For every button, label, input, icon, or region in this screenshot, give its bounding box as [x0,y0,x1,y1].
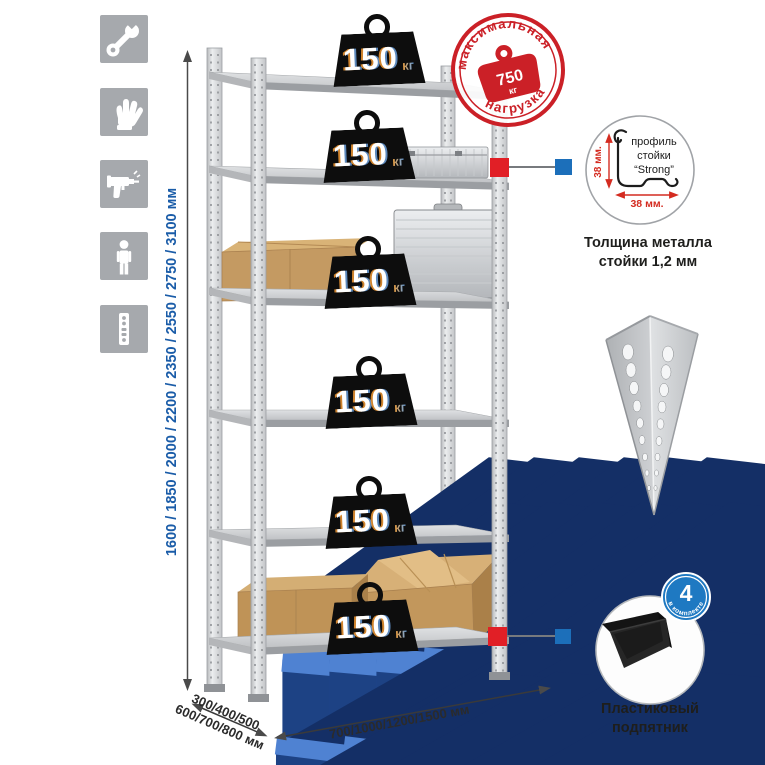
svg-text:стойки: стойки [637,150,671,162]
red-marker [488,627,507,646]
svg-text:“Strong”: “Strong” [634,164,674,176]
height-dimension-label: 1600 / 1850 / 2000 / 2200 / 2350 / 2550 … [164,188,180,556]
post-profile-detail: 38 мм. 38 мм. профиль стойки “Strong” [584,114,696,226]
height-dimension: 1600 / 1850 / 2000 / 2200 / 2350 / 2550 … [164,56,188,685]
profile-callout-connector [490,158,572,177]
wrench-icon [100,15,148,63]
person-icon [100,232,148,280]
included-count-badge: 4 в комплекте [659,570,713,624]
angle-post-image [596,310,706,525]
shelf-load-badge: 150кг [322,474,417,549]
drill-icon [100,160,148,208]
shelf-load-badge: 150кг [321,234,416,309]
profile-horizontal-dim: 38 мм. [630,198,663,210]
product-infographic: { "rack": { "shelf_load_value": "150", "… [0,0,765,765]
shelf-load-badge: 150кг [322,354,417,429]
svg-text:профиль: профиль [631,136,677,148]
profile-vertical-dim: 38 мм. [593,146,604,178]
profile-caption: Толщина металла стойки 1,2 мм [556,234,740,271]
blue-marker [555,629,571,644]
red-marker [490,158,509,177]
included-count-value: 4 [680,580,693,606]
foot-caption: Пластиковый подпятник [558,700,742,737]
shelf-load-badge: 150кг [330,12,425,87]
shelf-load-badge: 150кг [320,108,415,183]
profile-label: профиль стойки “Strong” [631,136,677,176]
gloves-icon [100,88,148,136]
shelf-load-badge: 150кг [323,580,418,655]
blue-marker [555,159,572,175]
perforated-post-icon [100,305,148,353]
